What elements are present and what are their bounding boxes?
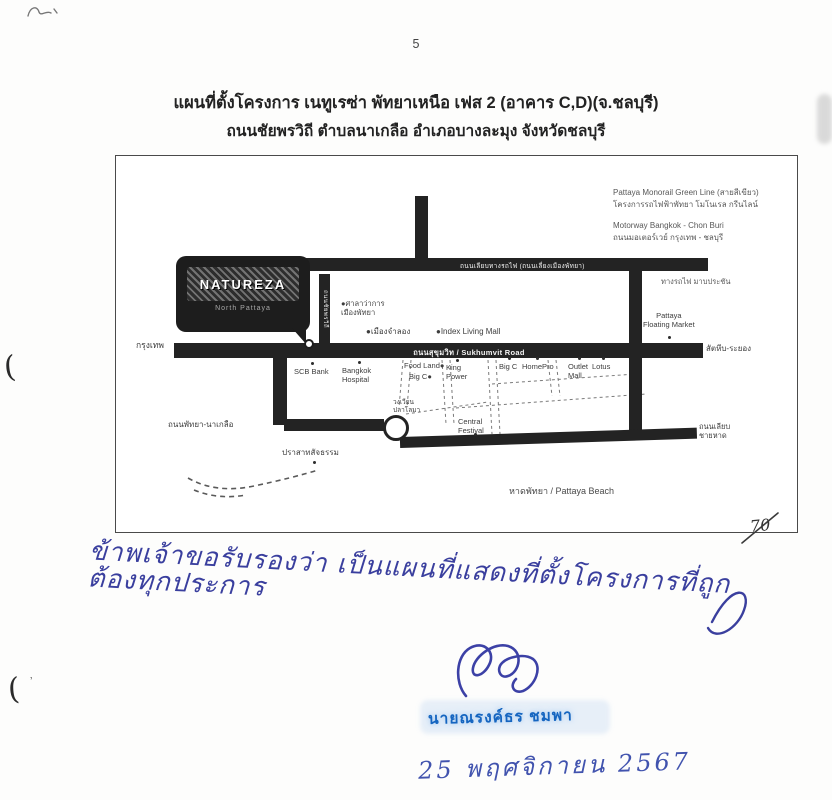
landmark-floating-market: Pattaya Floating Market <box>643 311 695 329</box>
sukhumvit-road-label: ถนนสุขุมวิท / Sukhumvit Road <box>354 347 584 359</box>
landmark-dot-central-festival <box>474 433 477 436</box>
landmark-sanctuary-of-truth: ปราสาทสัจธรรม <box>282 448 339 458</box>
connector-road-right-lower <box>629 358 642 430</box>
scan-smudge <box>817 94 832 144</box>
pattaya-naklua-road <box>284 419 384 431</box>
railway-destination-label: ทางรถไฟ มาบประชัน <box>661 277 731 286</box>
margin-tick-mark: ʼ <box>30 676 32 688</box>
landmark-dolphin-circle: วงเวียน ปลาโลมา <box>393 399 420 415</box>
page-ref-slash <box>738 505 786 549</box>
dolphin-roundabout <box>383 415 409 441</box>
page-number: 5 <box>0 37 832 51</box>
pattaya-naklua-road-label: ถนนพัทยา-นาเกลือ <box>168 420 233 430</box>
landmark-dot-king-power <box>456 359 459 362</box>
road-to-motorway <box>415 196 428 262</box>
landmark-lotus: Lotus <box>592 362 610 371</box>
landmark-outlet-mall: Outlet Mall <box>568 362 588 380</box>
legend-monorail-th: โครงการรถไฟฟ้าพัทยา โมโนเรล กรีนไลน์ <box>613 200 758 210</box>
document-title-line2: ถนนชัยพรวิถี ตำบลนาเกลือ อำเภอบางละมุง จ… <box>0 118 832 143</box>
connector-road-right-upper <box>629 269 642 346</box>
direction-sattahip-rayong-label: สัตหีบ-ระยอง <box>706 344 751 354</box>
margin-pen-mark-bottom: ( <box>7 672 21 708</box>
railway-bypass-road-label: ถนนเลียบทางรถไฟ (ถนนเลี่ยงเมืองพัทยา) <box>460 261 585 271</box>
project-site-marker <box>304 339 314 349</box>
landmark-scb-bank: SCB Bank <box>294 367 329 376</box>
project-logo-plate: NATUREZA <box>187 267 299 301</box>
landmark-city-hall: ●ศาลาว่าการ เมืองพัทยา <box>341 299 385 317</box>
landmark-central-festival: Central Festival <box>458 417 484 435</box>
legend-motorway-th: ถนนมอเตอร์เวย์ กรุงเทพ - ชลบุรี <box>613 233 723 243</box>
scanned-document-page: { "document": { "page_number": "5", "tit… <box>0 0 832 800</box>
project-callout-box: NATUREZA North Pattaya <box>176 256 310 332</box>
handwriting-flourish <box>700 578 760 648</box>
landmark-dot-sanctuary <box>313 461 316 464</box>
handwritten-date: 25 พฤศจิกายน 2567 <box>417 741 691 790</box>
landmark-dot-bangkok-hospital <box>358 361 361 364</box>
landmark-index-living-mall: ●Index Living Mall <box>436 327 500 337</box>
landmark-mini-siam: ●เมืองจำลอง <box>366 327 410 337</box>
landmark-homepro: HomePro <box>522 362 554 371</box>
corner-scribble <box>26 3 60 21</box>
landmark-dot-scb <box>311 362 314 365</box>
landmark-dot-lotus <box>602 357 605 360</box>
beach-road-label: ถนนเลียบ ชายหาด <box>699 422 730 440</box>
margin-pen-mark-top: ( <box>2 349 17 385</box>
handwritten-note: ข้าพเจ้าขอรับรองว่า เป็นแผนที่แสดงที่ตั้… <box>87 538 761 628</box>
pattaya-beach-label: หาดพัทยา / Pattaya Beach <box>509 486 614 497</box>
landmark-big-c-north: Big C● <box>409 372 432 381</box>
direction-bangkok-label: กรุงเทพ <box>136 340 164 350</box>
legend-motorway-en: Motorway Bangkok - Chon Buri <box>613 221 724 231</box>
project-location-map: Pattaya Monorail Green Line (สายสีเขียว)… <box>115 155 798 533</box>
project-subtitle: North Pattaya <box>176 305 310 312</box>
chaiyaphon-withi-road: ถนนชัยพรวิถี <box>319 274 330 344</box>
legend-monorail-en: Pattaya Monorail Green Line (สายสีเขียว) <box>613 188 759 198</box>
naklua-connector-road <box>273 357 287 425</box>
landmark-king-power: King Power <box>446 363 467 381</box>
name-stamp: นายณรงค์ธร ชมพา <box>428 702 573 731</box>
landmark-food-land: Food Land● <box>404 361 444 370</box>
landmark-dot-floating-market <box>668 336 671 339</box>
landmark-bangkok-hospital: Bangkok Hospital <box>342 366 371 384</box>
landmark-big-c: Big C <box>499 362 517 371</box>
landmark-dot-homepro <box>536 357 539 360</box>
project-name: NATUREZA <box>200 277 287 292</box>
landmark-dot-big-c <box>508 357 511 360</box>
landmark-dot-outlet-mall <box>578 357 581 360</box>
document-title-line1: แผนที่ตั้งโครงการ เนทูเรซ่า พัทยาเหนือ เ… <box>0 90 832 116</box>
